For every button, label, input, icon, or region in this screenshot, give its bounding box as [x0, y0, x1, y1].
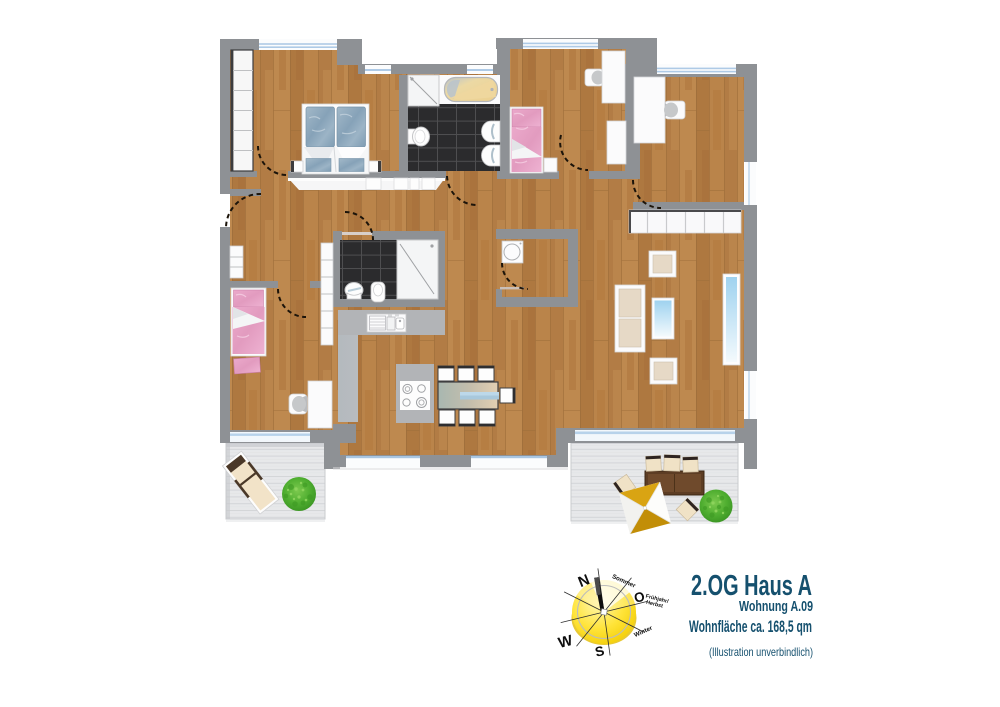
svg-text:Wohnfläche ca. 168,5 qm: Wohnfläche ca. 168,5 qm: [689, 618, 812, 636]
svg-text:(Illustration unverbindlich): (Illustration unverbindlich): [709, 645, 813, 659]
svg-text:Wohnung A.09: Wohnung A.09: [739, 598, 813, 615]
